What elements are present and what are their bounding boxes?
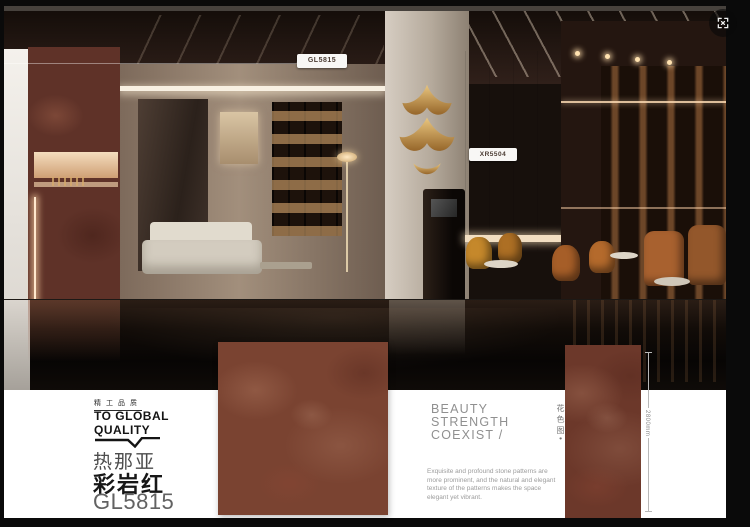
coffee-table	[260, 262, 312, 269]
product-code: GL5815	[93, 489, 174, 515]
dimension-label: 2800mm	[644, 408, 650, 438]
brand-emblem-icon	[395, 79, 459, 189]
cove-light-line-2	[561, 207, 726, 209]
floor-reflection-white-wall	[4, 300, 30, 390]
tile-swatch-side	[565, 345, 641, 518]
wall-art	[220, 112, 258, 164]
floor-lamp	[337, 152, 357, 162]
dimension-cap-top	[645, 352, 652, 353]
cove-light	[120, 86, 385, 91]
product-tag-left: GL5815	[297, 54, 347, 68]
description-block: Exquisite and profound stone patterns ar…	[427, 468, 555, 502]
lounge-area	[120, 64, 385, 316]
slogan-line: COEXIST /	[431, 429, 509, 442]
fullscreen-button[interactable]	[709, 9, 737, 37]
kiosk-screen	[431, 199, 457, 217]
description-line: more prominent, and the natural and eleg…	[427, 477, 555, 486]
dining-table	[610, 252, 638, 259]
gold-calligraphy-sign	[52, 177, 84, 186]
cove-light-line	[561, 101, 726, 103]
interior-render	[4, 9, 726, 390]
display-shelves	[272, 102, 342, 236]
brand-line-1: TO GLOBAL	[94, 409, 169, 423]
downlight-row	[575, 51, 580, 56]
tag-leader-line	[4, 63, 297, 64]
product-tag-right: XR5504	[469, 148, 517, 161]
description-line: elegant yet vibrant.	[427, 494, 555, 503]
dining-chair	[498, 233, 522, 263]
slogan-block: BEAUTY STRENGTH COEXIST /	[431, 403, 509, 442]
description-line: texture of the patterns makes the space	[427, 485, 555, 494]
fullscreen-icon	[716, 16, 730, 30]
brand-line-2: QUALITY	[94, 423, 150, 437]
description-line: Exquisite and profound stone patterns ar…	[427, 468, 555, 477]
tile-swatch-main	[218, 342, 388, 515]
swatch-side-label: 花色图•	[555, 404, 566, 443]
dining-chair	[552, 245, 580, 281]
dining-table	[484, 260, 518, 268]
dimension-cap-bottom	[645, 511, 652, 512]
floor-lamp-pole	[346, 160, 348, 272]
image-viewer: GL5815 XR5504 精工品质 TO GLOBAL QUALITY 热那亚…	[0, 0, 750, 527]
lounge-chair	[688, 225, 726, 285]
sofa	[142, 240, 262, 274]
lit-wall-recess	[34, 152, 118, 178]
side-table	[654, 277, 690, 286]
top-edge-strip	[4, 6, 726, 11]
